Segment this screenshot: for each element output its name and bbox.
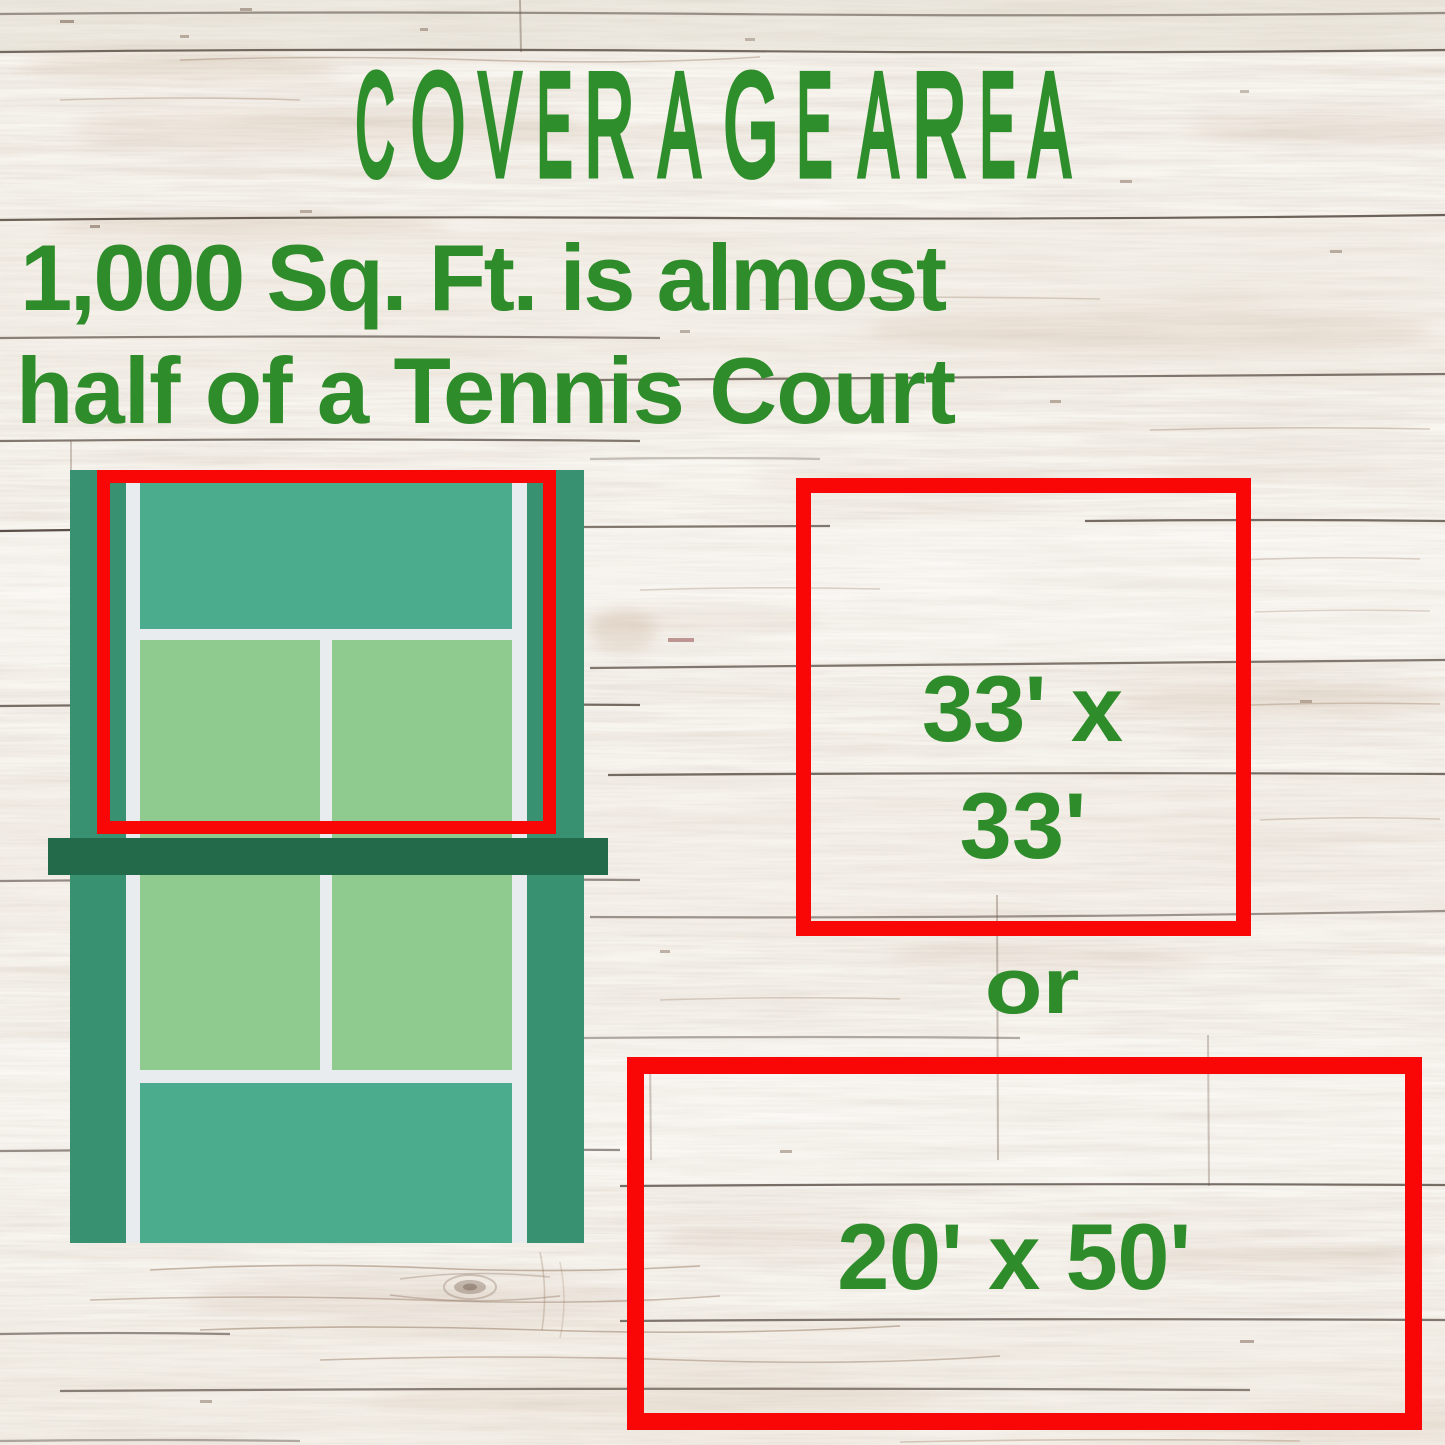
svg-text:O: O — [411, 44, 465, 207]
svg-text:A: A — [859, 43, 899, 207]
svg-text:E: E — [797, 44, 833, 207]
svg-text:A: A — [659, 42, 701, 206]
svg-text:E: E — [980, 44, 1016, 207]
svg-text:E: E — [537, 44, 573, 207]
svg-text:V: V — [479, 43, 522, 208]
svg-text:A: A — [1029, 42, 1071, 206]
svg-text:R: R — [585, 43, 635, 207]
svg-text:R: R — [912, 42, 967, 207]
svg-text:C: C — [355, 44, 394, 207]
svg-text:G: G — [723, 44, 778, 207]
